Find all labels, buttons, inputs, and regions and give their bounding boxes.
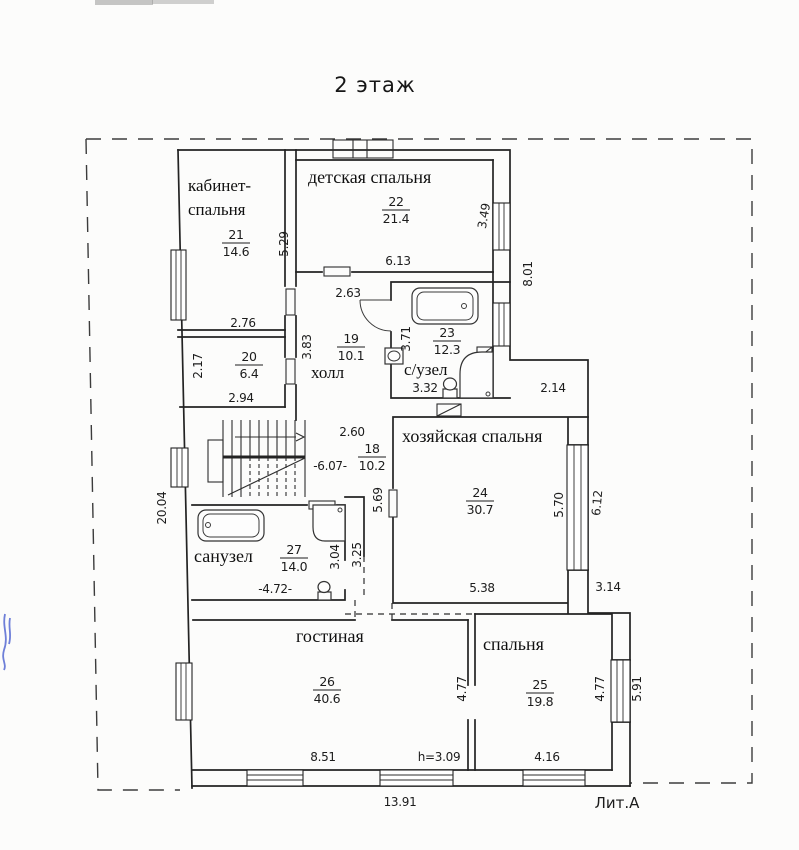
- room-number-bath: 2714.0: [280, 542, 308, 574]
- stairs-icon: [208, 420, 305, 497]
- window: [567, 445, 588, 570]
- svg-text:21.4: 21.4: [383, 211, 410, 226]
- window: [171, 250, 186, 320]
- dim-living-width: 8.51: [310, 750, 336, 764]
- chimney-block: [333, 140, 393, 158]
- room-label-living: гостиная: [296, 626, 364, 646]
- room-label-bath: санузел: [194, 546, 253, 566]
- svg-text:25: 25: [532, 677, 547, 692]
- dim-cabinet-width: 2.76: [230, 316, 256, 330]
- room-label-children: детская спальня: [308, 167, 431, 187]
- dim-stairs-top: 2.60: [339, 425, 365, 439]
- room-label-wc: с/узел: [404, 360, 448, 379]
- dim-passage-width: 2.14: [540, 381, 566, 395]
- room-label-cabinet-line2: спальня: [188, 200, 246, 219]
- svg-text:23: 23: [439, 325, 454, 340]
- dim-divider-height: 4.77: [455, 676, 469, 702]
- window: [380, 770, 453, 786]
- dim-room20-width: 2.94: [228, 391, 254, 405]
- dim-step-width: 3.14: [595, 580, 621, 594]
- svg-text:30.7: 30.7: [467, 502, 494, 517]
- litera-label: Лит.А: [595, 794, 641, 812]
- svg-text:12.3: 12.3: [434, 342, 461, 357]
- svg-text:19: 19: [343, 331, 359, 346]
- svg-text:24: 24: [472, 485, 488, 500]
- room-label-hall: холл: [311, 363, 345, 382]
- svg-text:14.0: 14.0: [281, 559, 308, 574]
- scanned-floor-plan-page: 2 этаж: [0, 0, 799, 850]
- svg-text:6.4: 6.4: [240, 366, 259, 381]
- room-number-20: 206.4: [235, 349, 263, 381]
- toilet-icon: [318, 582, 331, 601]
- scan-artifact: [95, 0, 214, 5]
- window: [523, 770, 585, 786]
- room-label-master: хозяйская спальня: [402, 426, 542, 446]
- window: [176, 663, 192, 720]
- room-number-wc: 2312.3: [433, 325, 461, 357]
- svg-text:14.6: 14.6: [223, 244, 250, 259]
- dim-bedroom-window: 4.77: [593, 676, 607, 702]
- svg-text:18: 18: [364, 441, 380, 456]
- pen-mark: [3, 614, 10, 670]
- dim-cabinet-height: 5.29: [277, 231, 291, 257]
- svg-text:10.2: 10.2: [359, 458, 386, 473]
- svg-text:10.1: 10.1: [338, 348, 365, 363]
- bathtub-icon: [198, 510, 264, 541]
- dim-ceiling-height: h=3.09: [418, 750, 461, 764]
- window: [171, 448, 188, 487]
- svg-text:22: 22: [388, 194, 403, 209]
- svg-text:27: 27: [286, 542, 301, 557]
- window: [493, 203, 510, 250]
- dim-bath-width: -4.72-: [258, 582, 292, 596]
- room-label-cabinet-line1: кабинет-: [188, 176, 251, 195]
- dim-bottom-total: 13.91: [384, 795, 417, 809]
- svg-text:26: 26: [319, 674, 335, 689]
- dim-right-wall-upper: 8.01: [521, 261, 535, 287]
- svg-text:20: 20: [241, 349, 257, 364]
- window: [247, 770, 303, 786]
- room-number-master: 2430.7: [466, 485, 494, 517]
- dim-bath-ext: 3.25: [350, 542, 364, 568]
- dim-bath-height: 3.04: [328, 544, 342, 570]
- dim-stairs-height: 5.69: [371, 487, 385, 513]
- dim-wc-height: 3.71: [399, 326, 413, 352]
- dim-left-wall-total: 20.04: [155, 492, 169, 525]
- window: [611, 660, 630, 722]
- shower-icon: [313, 505, 345, 541]
- svg-text:19.8: 19.8: [527, 694, 554, 709]
- stairs-direction-arrow: [235, 433, 304, 441]
- dim-master-window-ext: 6.12: [589, 490, 605, 517]
- toilet-icon: [443, 378, 457, 398]
- dim-hall-height: 3.83: [300, 334, 314, 360]
- room-label-bedroom: спальня: [483, 634, 544, 654]
- door-leafs: [286, 267, 397, 517]
- dim-bedroom-window-ext: 5.91: [630, 676, 644, 702]
- dim-bedroom-width: 4.16: [534, 750, 560, 764]
- dim-room20-height: 2.17: [191, 353, 205, 379]
- dim-hall-top: 2.63: [335, 286, 361, 300]
- room-number-bedroom: 2519.8: [526, 677, 554, 709]
- dim-wc-width: 3.32: [412, 381, 438, 395]
- room-number-children: 2221.4: [382, 194, 410, 226]
- dim-children-width: 6.13: [385, 254, 411, 268]
- door-arc: [360, 300, 391, 331]
- room-number-cabinet: 2114.6: [222, 227, 250, 259]
- bathtub-icon: [412, 288, 478, 324]
- floor-title: 2 этаж: [334, 73, 416, 97]
- dim-master-window: 5.70: [552, 492, 566, 518]
- shower-icon: [460, 352, 493, 398]
- room-number-stairhall: 1810.2: [358, 441, 386, 473]
- window: [493, 303, 510, 346]
- room-number-living: 2640.6: [313, 674, 341, 706]
- room-number-hall: 1910.1: [337, 331, 365, 363]
- floor-plan-drawing: 2 этаж: [0, 0, 799, 850]
- svg-text:40.6: 40.6: [314, 691, 341, 706]
- dim-master-width: 5.38: [469, 581, 495, 595]
- dim-stairs-width: -6.07-: [313, 459, 347, 473]
- svg-text:21: 21: [228, 227, 243, 242]
- dim-children-window: 3.49: [475, 202, 493, 230]
